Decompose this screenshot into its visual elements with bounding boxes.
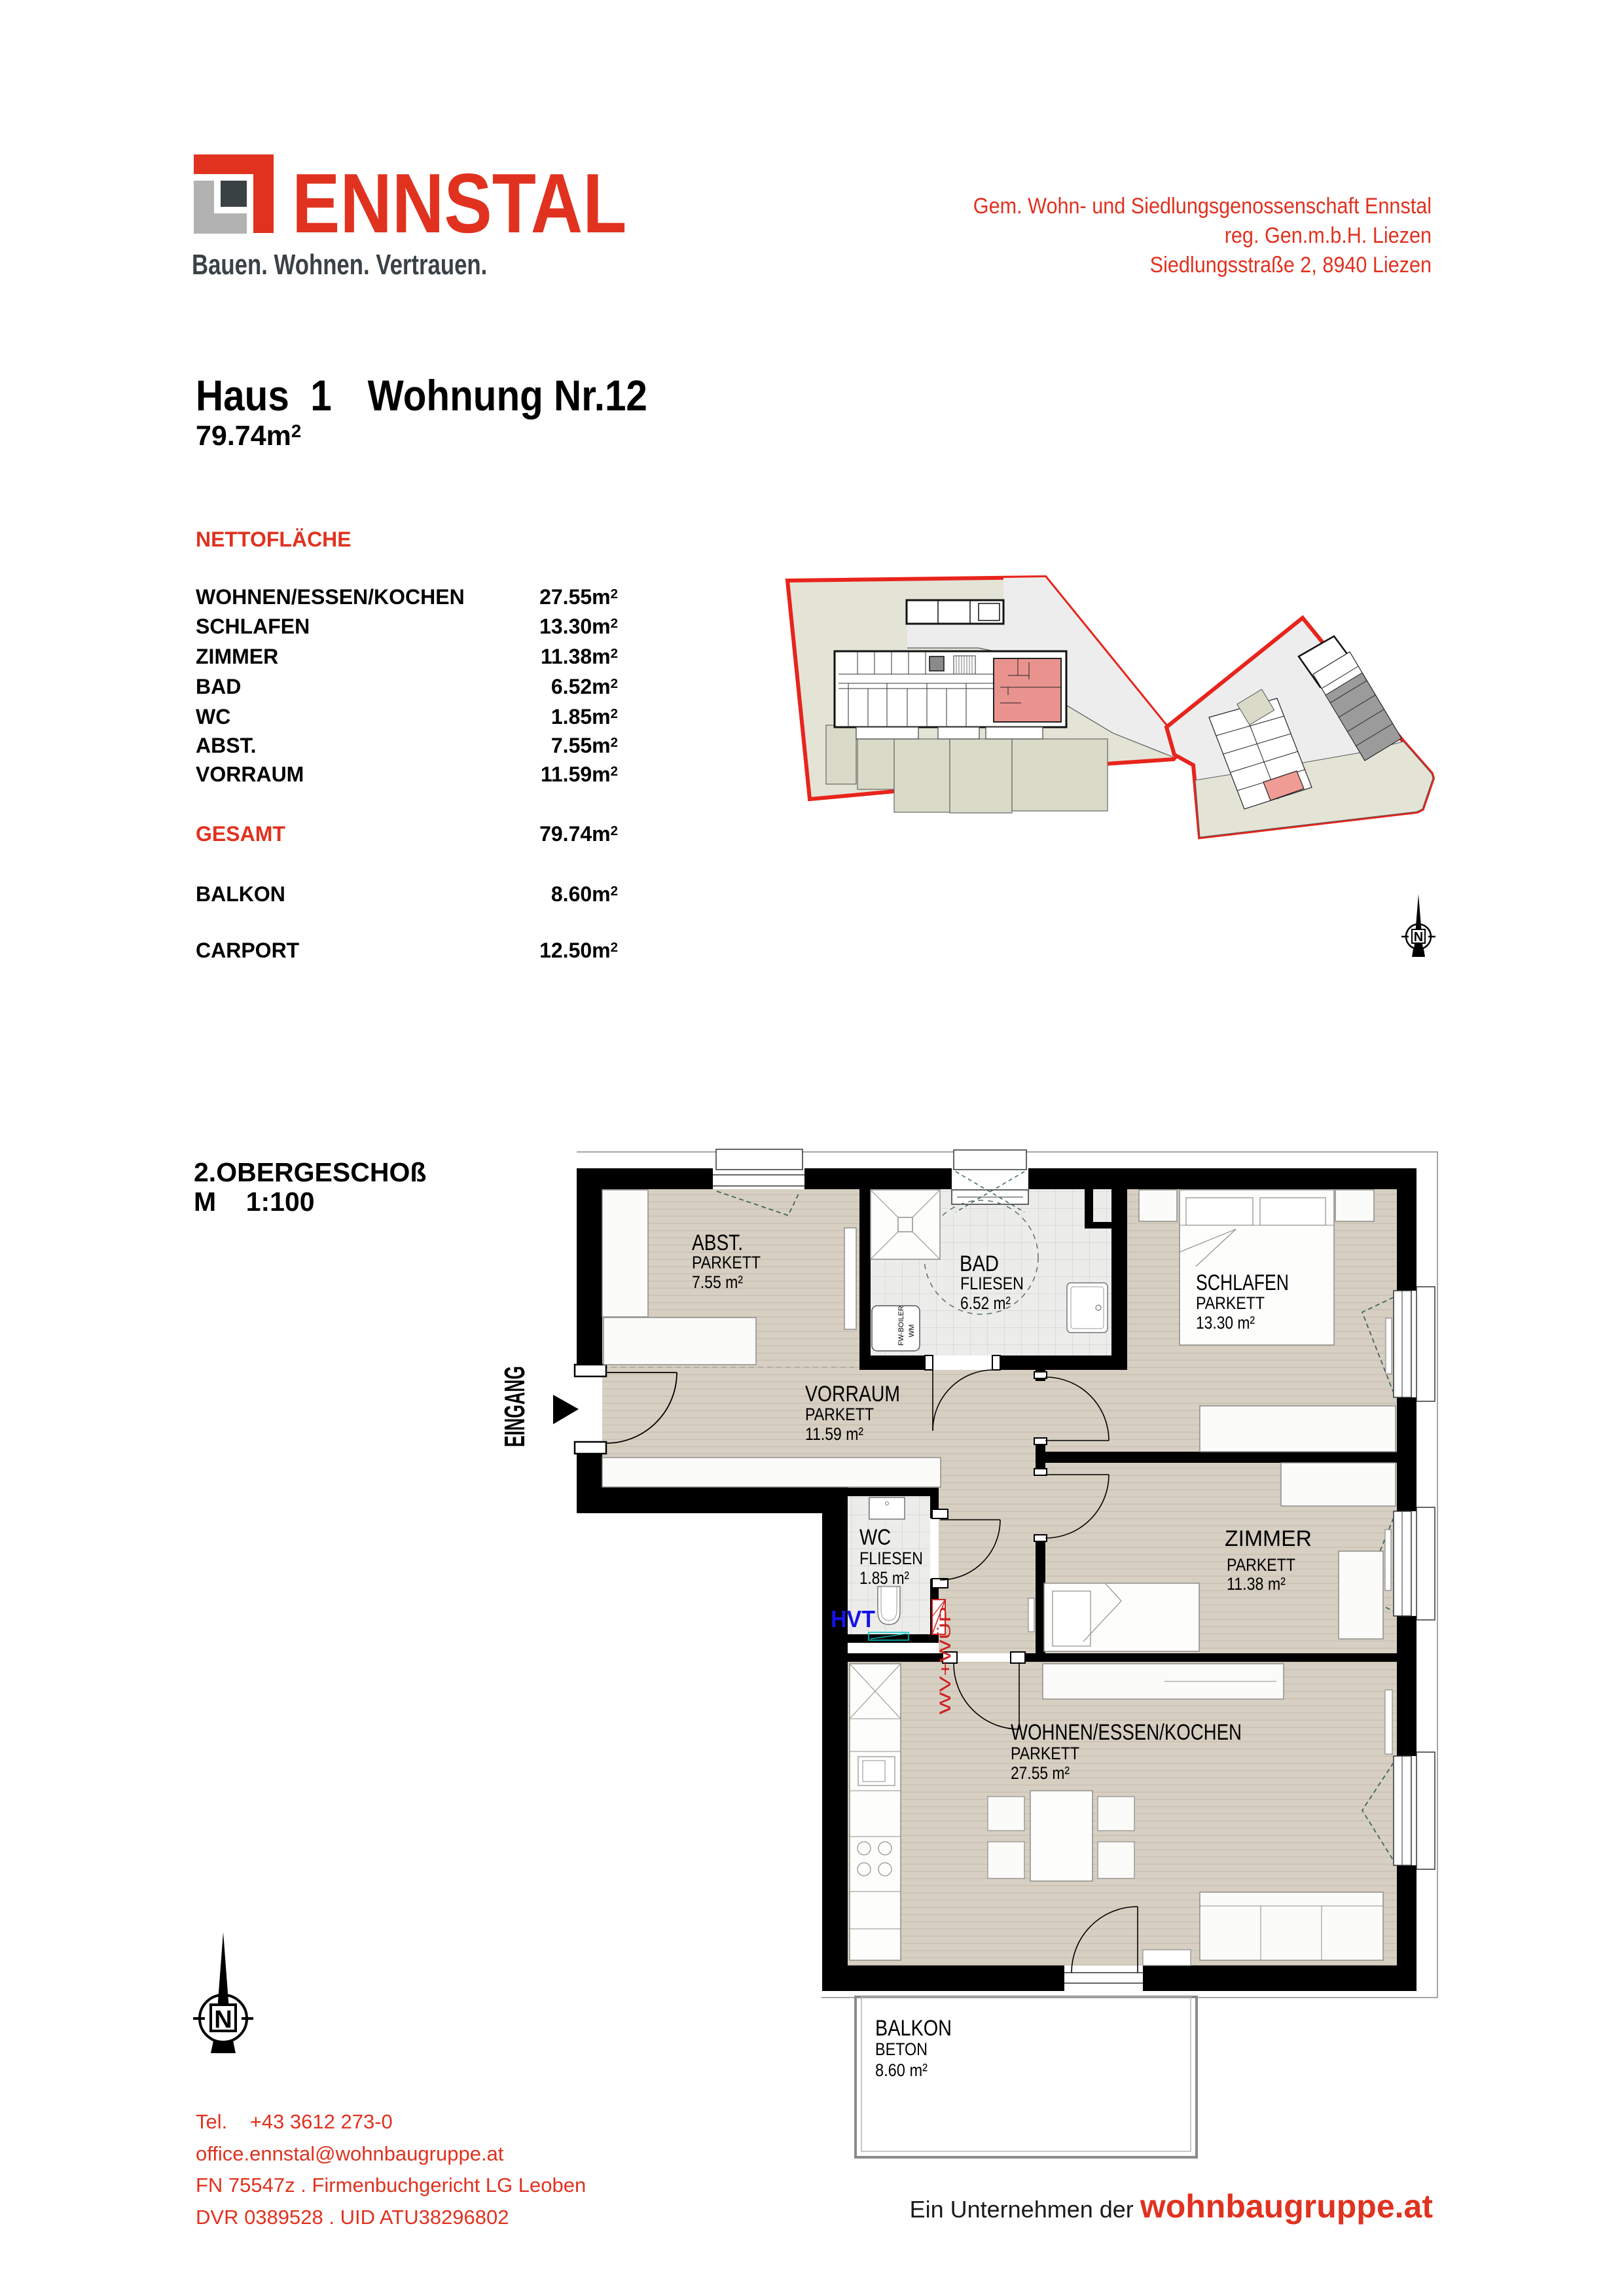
- svg-text:PARKETT: PARKETT: [1227, 1555, 1295, 1575]
- svg-text:WV+WÜP: WV+WÜP: [937, 1607, 954, 1715]
- svg-text:N: N: [214, 2006, 232, 2034]
- svg-text:WC: WC: [859, 1525, 891, 1550]
- svg-text:FLIESEN: FLIESEN: [960, 1274, 1024, 1293]
- svg-text:13.30 m²: 13.30 m²: [1196, 1313, 1255, 1333]
- svg-text:11.38 m²: 11.38 m²: [1227, 1574, 1286, 1594]
- svg-text:ZIMMER: ZIMMER: [1225, 1526, 1312, 1551]
- svg-text:PARKETT: PARKETT: [1011, 1744, 1079, 1763]
- svg-text:HVT: HVT: [831, 1605, 875, 1632]
- svg-text:VORRAUM: VORRAUM: [805, 1382, 900, 1407]
- svg-text:1.85 m²: 1.85 m²: [859, 1568, 909, 1588]
- svg-text:6.52 m²: 6.52 m²: [960, 1293, 1011, 1313]
- svg-text:SCHLAFEN: SCHLAFEN: [1196, 1270, 1289, 1295]
- svg-text:11.59 m²: 11.59 m²: [805, 1424, 863, 1444]
- svg-text:PARKETT: PARKETT: [692, 1253, 761, 1272]
- svg-text:WM: WM: [908, 1324, 916, 1337]
- svg-text:8.60 m²: 8.60 m²: [875, 2060, 928, 2080]
- svg-text:PARKETT: PARKETT: [805, 1405, 874, 1424]
- svg-text:PARKETT: PARKETT: [1196, 1293, 1265, 1313]
- svg-text:FW-BOILER: FW-BOILER: [897, 1306, 905, 1346]
- svg-text:BALKON: BALKON: [875, 2016, 952, 2041]
- svg-text:BETON: BETON: [875, 2039, 928, 2059]
- svg-text:N: N: [1414, 930, 1423, 944]
- svg-text:WOHNEN/ESSEN/KOCHEN: WOHNEN/ESSEN/KOCHEN: [1011, 1720, 1242, 1745]
- svg-text:27.55 m²: 27.55 m²: [1011, 1763, 1070, 1783]
- svg-text:EINGANG: EINGANG: [499, 1366, 531, 1447]
- svg-text:ABST.: ABST.: [692, 1230, 743, 1255]
- svg-text:FLIESEN: FLIESEN: [859, 1549, 923, 1568]
- svg-text:BAD: BAD: [960, 1251, 999, 1276]
- svg-text:7.55 m²: 7.55 m²: [692, 1272, 743, 1292]
